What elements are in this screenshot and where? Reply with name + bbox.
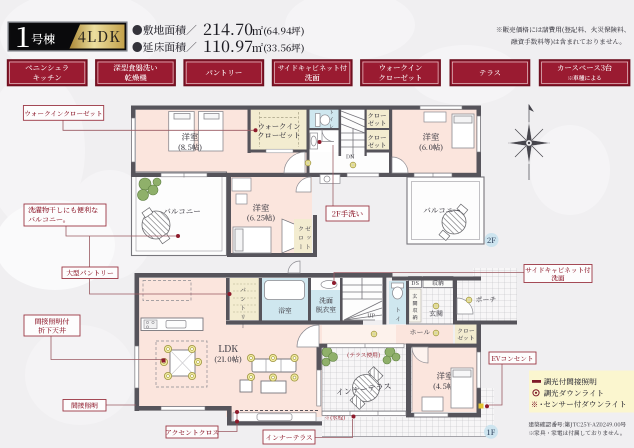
svg-text:玄関: 玄関 (429, 308, 443, 318)
svg-text:バルコニー: バルコニー (423, 205, 461, 216)
svg-text:※車種による: ※車種による (567, 73, 602, 82)
svg-text:間接照明: 間接照明 (71, 400, 98, 410)
svg-text:2F: 2F (487, 235, 496, 246)
svg-text:※販売価格には諸費用(登記料、火災保険料、: ※販売価格には諸費用(登記料、火災保険料、 (496, 24, 630, 34)
svg-text:バルコニー。: バルコニー。 (27, 215, 70, 225)
svg-text:※家具・家電は付属しておりません。: ※家具・家電は付属しておりません。 (529, 428, 626, 437)
svg-text:パントリー: パントリー (205, 68, 242, 79)
svg-text:(21.0帖): (21.0帖) (214, 354, 242, 365)
svg-text:(6.25帖): (6.25帖) (247, 213, 275, 224)
svg-text:アクセントクロス: アクセントクロス (165, 427, 219, 437)
svg-text:ゼット: ゼット (367, 119, 386, 128)
svg-text:パントリー: パントリー (239, 285, 248, 330)
svg-text:ウォークインクローゼット: ウォークインクローゼット (24, 108, 102, 118)
svg-text:※: ※ (531, 399, 539, 410)
svg-text:インナーテラス: インナーテラス (265, 432, 312, 442)
svg-text:カースペース3台: カースペース3台 (557, 63, 612, 74)
svg-text:乾燥機: 乾燥機 (124, 73, 147, 84)
svg-text:1F: 1F (487, 427, 496, 438)
svg-text:㎡: ㎡ (252, 23, 263, 39)
svg-text:玄関収納: 玄関収納 (412, 293, 419, 321)
svg-text:調光付間接照明: 調光付間接照明 (544, 377, 598, 388)
svg-text:ゼット: ゼット (304, 224, 313, 251)
svg-text:クローゼット: クローゼット (257, 131, 301, 141)
svg-text:(33.56坪): (33.56坪) (263, 41, 304, 55)
svg-text:浴室: 浴室 (278, 305, 292, 315)
svg-text:●延床面積／: ●延床面積／ (132, 40, 197, 55)
svg-text:EVコンセント: EVコンセント (492, 353, 534, 363)
svg-text:ポーチ: ポーチ (476, 294, 497, 304)
svg-text:折下天井: 折下天井 (38, 326, 66, 336)
svg-text:(64.94坪): (64.94坪) (263, 24, 304, 38)
svg-text:DN: DN (346, 153, 355, 161)
svg-text:キッチン: キッチン (33, 73, 62, 84)
svg-text:ホール: ホール (410, 327, 430, 337)
svg-text:1: 1 (15, 16, 31, 56)
svg-text:㎡: ㎡ (252, 40, 263, 56)
svg-text:ゼット: ゼット (457, 333, 474, 342)
svg-text:調光ダウンライト: 調光ダウンライト (544, 388, 605, 399)
svg-text:(8.5帖): (8.5帖) (178, 142, 202, 153)
svg-text:号棟: 号棟 (31, 31, 55, 48)
svg-text:2F手洗い: 2F手洗い (332, 209, 363, 220)
svg-text:トイレ: トイレ (328, 109, 335, 130)
svg-text:110.97: 110.97 (203, 34, 253, 57)
svg-text:バルコニー: バルコニー (163, 206, 201, 217)
svg-text:(テラス使用): (テラス使用) (347, 350, 380, 359)
svg-text:4LDK: 4LDK (78, 26, 122, 47)
svg-text:クローゼット: クローゼット (378, 73, 422, 84)
svg-text:LDK: LDK (218, 341, 238, 355)
svg-text:ゼット: ゼット (367, 141, 386, 150)
svg-text:(6.0帖): (6.0帖) (419, 142, 443, 153)
svg-text:洗面: 洗面 (551, 273, 565, 283)
svg-text:融資手数料等)は含まれておりません。: 融資手数料等)は含まれておりません。 (511, 36, 626, 46)
svg-text:洗面: 洗面 (305, 73, 320, 84)
svg-text:洗濯物干しにも便利な: 洗濯物干しにも便利な (28, 206, 98, 216)
svg-text:●敷地面積／: ●敷地面積／ (132, 23, 197, 38)
svg-text:UP: UP (367, 312, 375, 320)
svg-text:大型パントリー: 大型パントリー (66, 268, 114, 278)
svg-text:脱衣室: 脱衣室 (316, 304, 337, 314)
svg-text:･センサー付ダウンライト: ･センサー付ダウンライト (540, 399, 627, 410)
svg-text:テラス: テラス (479, 68, 501, 79)
